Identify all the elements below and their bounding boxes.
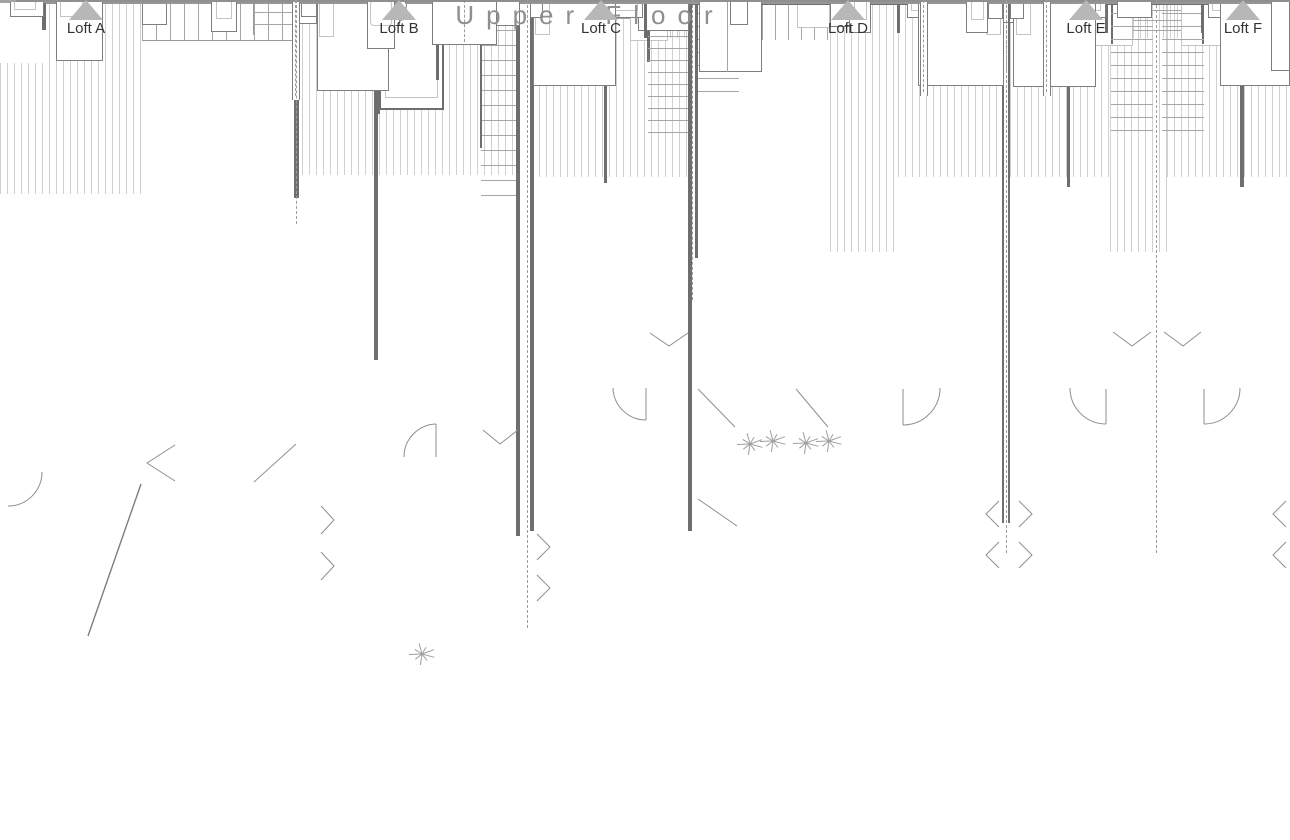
- stair-loft-a-landing: [253, 0, 297, 35]
- plant-frond: [829, 437, 841, 441]
- plant-frond: [760, 441, 773, 442]
- post-dashed-center: [295, 0, 296, 96]
- plant-frond: [773, 434, 777, 441]
- plant-frond: [750, 444, 755, 450]
- plant-icon: [760, 430, 785, 452]
- stair-direction-arrow: [1164, 332, 1201, 346]
- plant-frond: [806, 443, 818, 446]
- post-inner: [971, 0, 984, 20]
- plant-frond: [793, 443, 806, 444]
- bed-chevron: [1019, 542, 1032, 568]
- marker-loft-a: Loft A: [69, 0, 128, 37]
- plant-frond: [737, 444, 750, 445]
- post-dashed-center: [923, 0, 924, 92]
- plant-frond: [822, 436, 829, 441]
- triangle-marker-icon: [1226, 0, 1260, 20]
- plant-frond: [816, 441, 829, 442]
- plant-frond: [773, 441, 785, 444]
- stair-direction-arrow: [483, 430, 518, 444]
- plant-frond: [773, 441, 778, 447]
- post-dashed-center: [1046, 0, 1047, 92]
- stair-diagonal: [698, 499, 737, 526]
- bed-chevron: [537, 534, 550, 560]
- triangle-marker-icon: [382, 0, 416, 20]
- plant-frond: [750, 437, 754, 444]
- bed-chevron: [1019, 501, 1032, 527]
- bed-chevron: [537, 575, 550, 601]
- plant-frond: [770, 430, 773, 441]
- column-post: [920, 0, 928, 96]
- marker-loft-f: Loft F: [1226, 0, 1285, 37]
- plant-frond: [409, 654, 422, 655]
- bed-chevron: [986, 542, 999, 568]
- unit-label: Loft E: [1044, 20, 1128, 37]
- loft-a-room-diagonal-wall: [88, 484, 141, 636]
- marker-loft-d: Loft D: [831, 0, 890, 37]
- unit-label: Loft F: [1201, 20, 1285, 37]
- door-arc-loft-a: [8, 472, 42, 506]
- plant-frond: [743, 439, 750, 444]
- unit-label: Loft A: [44, 20, 128, 37]
- pillow: [319, 0, 334, 37]
- loft-a-room: [88, 484, 296, 636]
- plant-frond: [771, 441, 773, 452]
- plant-frond: [799, 443, 806, 448]
- triangle-marker-icon: [584, 0, 618, 20]
- post-inner: [216, 0, 232, 19]
- plant-frond: [766, 436, 773, 441]
- triangle-marker-icon: [69, 0, 103, 20]
- plant-frond: [773, 437, 785, 441]
- bed-chevron: [321, 552, 334, 580]
- plant-frond: [766, 441, 773, 446]
- plant-frond: [422, 654, 434, 657]
- door-arc-bath-b: [404, 424, 436, 457]
- stair-diagonal: [254, 444, 296, 482]
- plant-frond: [829, 441, 834, 447]
- plant-frond: [826, 430, 829, 441]
- plant-frond: [806, 436, 810, 443]
- door-arc-bath-c: [613, 388, 646, 420]
- triangle-marker-icon: [831, 0, 865, 20]
- plant-frond: [420, 654, 422, 665]
- unit-label: Loft C: [559, 20, 643, 37]
- stair-diagonal: [698, 389, 735, 427]
- floor-plan-canvas: Upper Floor Loft A Loft B Loft C Loft D …: [0, 0, 1290, 840]
- dashed-boundary-line: [1006, 0, 1007, 70]
- wall: [897, 0, 900, 33]
- bed-chevron: [986, 501, 999, 527]
- dashed-boundary-line: [1156, 0, 1157, 553]
- plant-frond: [419, 643, 422, 654]
- door-arc-bath-f: [1204, 388, 1240, 424]
- dashed-boundary-line: [692, 0, 693, 300]
- plant-frond: [799, 438, 806, 443]
- plant-frond: [829, 441, 841, 444]
- plant-frond: [422, 654, 427, 660]
- plant-frond: [806, 439, 818, 443]
- plant-icon: [816, 430, 841, 452]
- marker-loft-e: Loft E: [1069, 0, 1128, 37]
- stair-arrow: [147, 445, 175, 481]
- plant-frond: [822, 441, 829, 446]
- plant-frond: [415, 654, 422, 659]
- door-arc-bath-d: [903, 388, 940, 425]
- plant-frond: [829, 434, 833, 441]
- door-arc-bath-e: [1070, 388, 1106, 424]
- plant-frond: [748, 444, 750, 455]
- plant-frond: [750, 444, 762, 447]
- plant-icon: [793, 432, 818, 454]
- triangle-marker-icon: [1069, 0, 1103, 20]
- plant-frond: [827, 441, 829, 452]
- dashed-boundary-line: [527, 0, 528, 628]
- wall: [1008, 0, 1010, 523]
- stair-loft-f-run-treads: [1162, 0, 1204, 134]
- stair-direction-arrow: [1113, 332, 1151, 346]
- plant-frond: [415, 649, 422, 654]
- bed-chevron: [1273, 501, 1286, 527]
- plant-frond: [422, 650, 434, 654]
- stair-direction-arrow: [650, 333, 688, 346]
- stair-diagonal: [796, 389, 828, 427]
- bed-chevron: [321, 506, 334, 534]
- unit-label: Loft D: [806, 20, 890, 37]
- unit-label: Loft B: [357, 20, 441, 37]
- plant-icon: [409, 643, 434, 665]
- plant-frond: [422, 647, 426, 654]
- plant-frond: [747, 433, 750, 444]
- plant-frond: [804, 443, 806, 454]
- plant-frond: [806, 443, 811, 449]
- plant-frond: [803, 432, 806, 443]
- plant-frond: [750, 440, 762, 444]
- wall: [695, 0, 698, 258]
- column-post: [1043, 0, 1051, 96]
- bed-chevron: [1273, 542, 1286, 568]
- marker-loft-c: Loft C: [584, 0, 643, 37]
- dashed-boundary-line: [296, 0, 297, 224]
- deck-hatch-loft-d: [830, 0, 898, 252]
- marker-loft-b: Loft B: [382, 0, 441, 37]
- plant-icon: [737, 433, 762, 455]
- dashed-boundary-line: [1006, 0, 1007, 553]
- wall: [516, 0, 520, 536]
- plant-frond: [743, 444, 750, 449]
